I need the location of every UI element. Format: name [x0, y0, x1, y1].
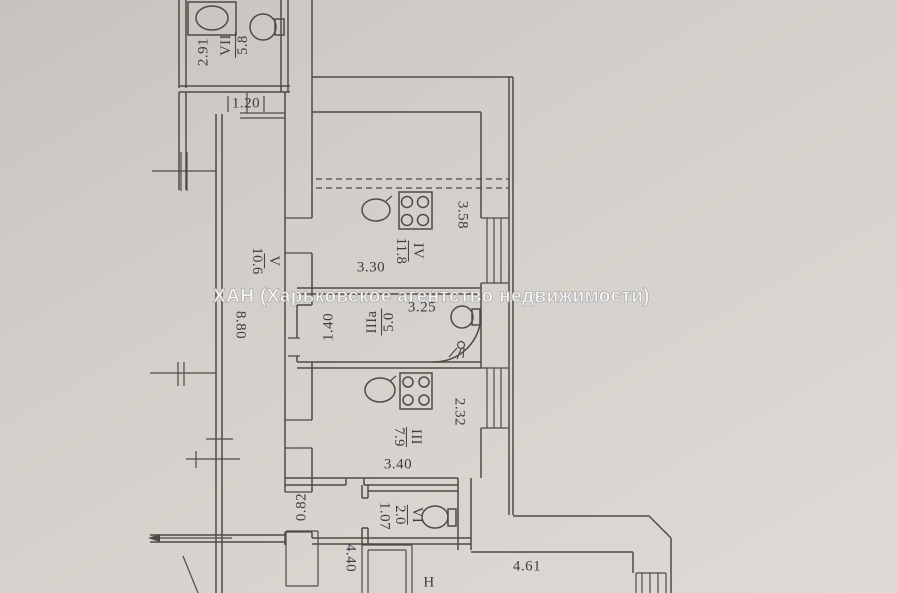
- shower-icon: [434, 315, 481, 362]
- dim-passage-width: 0.82: [294, 493, 311, 521]
- floor-plan: VII5.8 V10.6 IV11.8 IIIа5.0 III7.9 VI2.0…: [0, 0, 897, 593]
- dim-room-iii-width: 3.40: [384, 457, 412, 474]
- partial-label: Н: [423, 575, 434, 592]
- room-area: 10.6: [248, 247, 264, 274]
- room-area: 2.0: [391, 505, 407, 525]
- room-label-iv: IV11.8: [392, 238, 426, 265]
- room-label-vi: VI2.0: [391, 505, 425, 525]
- agency-watermark: ХАН (Харьковское агентство недвижимости): [213, 286, 650, 308]
- dim-room-iii-depth: 2.32: [451, 398, 468, 426]
- room-numeral: IV: [408, 241, 425, 261]
- room-area: 5.0: [382, 312, 398, 332]
- sink-icon: [362, 196, 392, 221]
- toilet-icon: [422, 506, 456, 528]
- dim-room-iv-depth: 3.58: [454, 201, 471, 229]
- room-area: 5.8: [236, 35, 252, 55]
- toilet-icon: [451, 306, 480, 328]
- dim-room-vii-width: 2.91: [196, 38, 213, 66]
- room-numeral: III: [406, 427, 423, 447]
- room-numeral: V: [264, 254, 281, 269]
- mezzanine-dashed-lines: [316, 179, 509, 188]
- dim-bottom-wall-left: 4.40: [342, 544, 359, 572]
- dim-room-iiia-width: 1.40: [321, 313, 338, 341]
- dim-room-vi-width: 1.07: [376, 502, 393, 530]
- stove-icon: [400, 373, 432, 409]
- room-label-iiia: IIIа5.0: [364, 309, 398, 336]
- room-numeral: VII: [219, 32, 236, 58]
- dim-corridor-length: 8.80: [232, 311, 249, 339]
- sink-unit-icon: [188, 2, 236, 35]
- dim-room-iv-width: 3.30: [357, 260, 385, 277]
- room-numeral: IIIа: [365, 309, 382, 336]
- room-area: 11.8: [392, 238, 408, 265]
- sink-icon: [365, 376, 396, 402]
- room-area: 7.9: [390, 427, 406, 447]
- toilet-icon: [250, 14, 284, 40]
- room-label-iii: III7.9: [390, 427, 424, 447]
- room-label-v: V10.6: [248, 247, 282, 274]
- room-numeral: VI: [407, 505, 424, 525]
- dim-bottom-wall-right: 4.61: [513, 559, 541, 576]
- stove-icon: [399, 192, 432, 229]
- room-label-vii: VII5.8: [218, 32, 252, 58]
- dim-entry-opening: 1.20: [232, 96, 260, 113]
